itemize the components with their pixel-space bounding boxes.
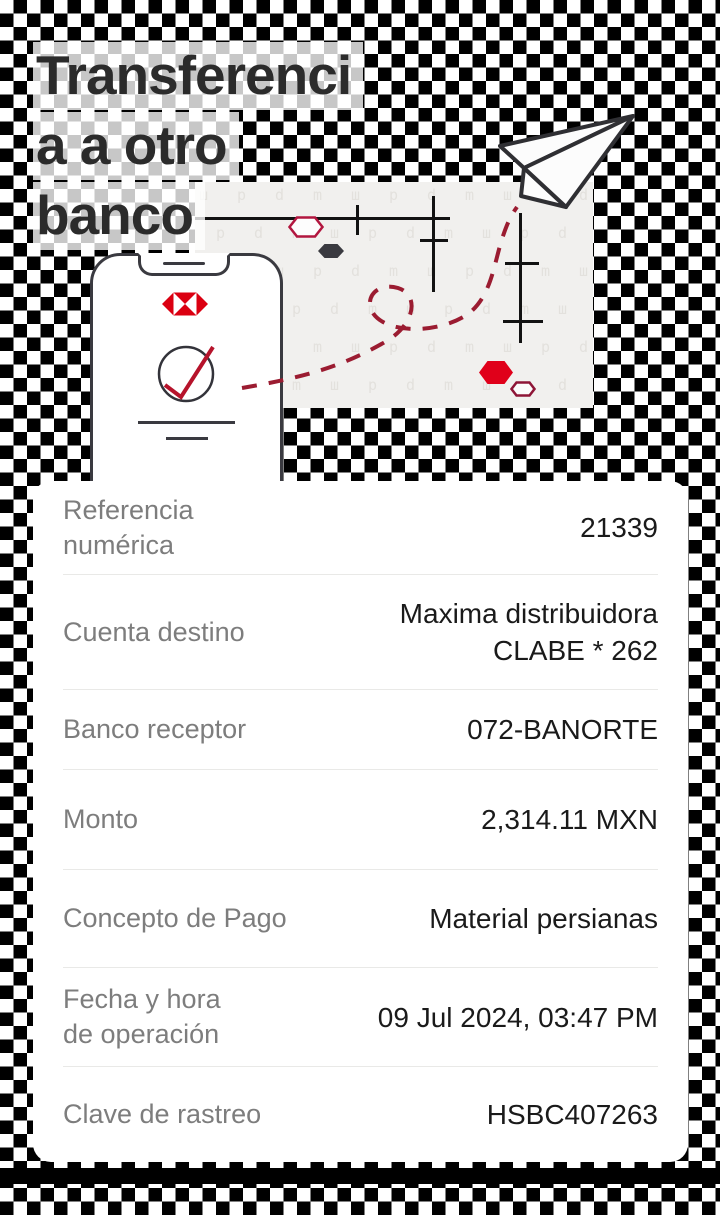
title-line-1: Transferenci — [33, 42, 363, 110]
detail-row-banco-receptor: Banco receptor 072-BANORTE — [63, 690, 658, 770]
row-value: 21339 — [194, 509, 658, 546]
detail-row-cuenta-destino: Cuenta destino Maxima distribuidora CLAB… — [63, 575, 658, 690]
row-value: 09 Jul 2024, 03:47 PM — [221, 999, 658, 1036]
detail-row-concepto: Concepto de Pago Material persianas — [63, 870, 658, 968]
detail-row-monto: Monto 2,314.11 MXN — [63, 770, 658, 870]
phone-notch — [138, 253, 230, 276]
watermark-glyph: p — [541, 338, 550, 356]
watermark-glyph: d — [558, 224, 567, 242]
screen: шpdmшpdmшpdpdmшpdmшpdmdmшpdmшpdmшmшpdmшp… — [0, 0, 720, 1215]
row-label: Cuenta destino — [63, 615, 245, 650]
bottom-black-band — [0, 1168, 720, 1184]
watermark-glyph: m — [541, 262, 550, 280]
success-check-icon — [153, 341, 223, 409]
watermark-glyph: ш — [579, 262, 588, 280]
detail-row-fecha-hora: Fecha y hora de operación 09 Jul 2024, 0… — [63, 968, 658, 1067]
row-value: Maxima distribuidora CLABE * 262 — [245, 595, 658, 669]
row-label: Fecha y hora de operación — [63, 982, 221, 1052]
row-label: Concepto de Pago — [63, 901, 287, 936]
page-title: Transferenci a a otro banco — [33, 42, 363, 252]
phone-speaker — [163, 262, 205, 265]
row-label: Referencia numérica — [63, 493, 194, 563]
row-label: Banco receptor — [63, 712, 246, 747]
detail-row-referencia: Referencia numérica 21339 — [63, 481, 658, 575]
watermark-glyph: d — [579, 338, 588, 356]
row-value: 072-BANORTE — [246, 711, 658, 748]
title-line-3: banco — [33, 182, 205, 250]
row-value: Material persianas — [287, 900, 658, 937]
watermark-glyph: d — [558, 376, 567, 394]
row-value: 2,314.11 MXN — [138, 801, 658, 838]
hsbc-logo-icon — [162, 292, 208, 316]
row-label: Clave de rastreo — [63, 1097, 261, 1132]
detail-row-clave-rastreo: Clave de rastreo HSBC407263 — [63, 1067, 658, 1162]
transfer-details-card: Referencia numérica 21339 Cuenta destino… — [33, 481, 688, 1162]
watermark-glyph: ш — [558, 300, 567, 318]
screen-line-2 — [166, 437, 208, 440]
row-value: HSBC407263 — [261, 1096, 658, 1133]
row-label: Monto — [63, 802, 138, 837]
screen-line-1 — [138, 421, 235, 424]
title-line-2: a a otro — [33, 112, 239, 180]
